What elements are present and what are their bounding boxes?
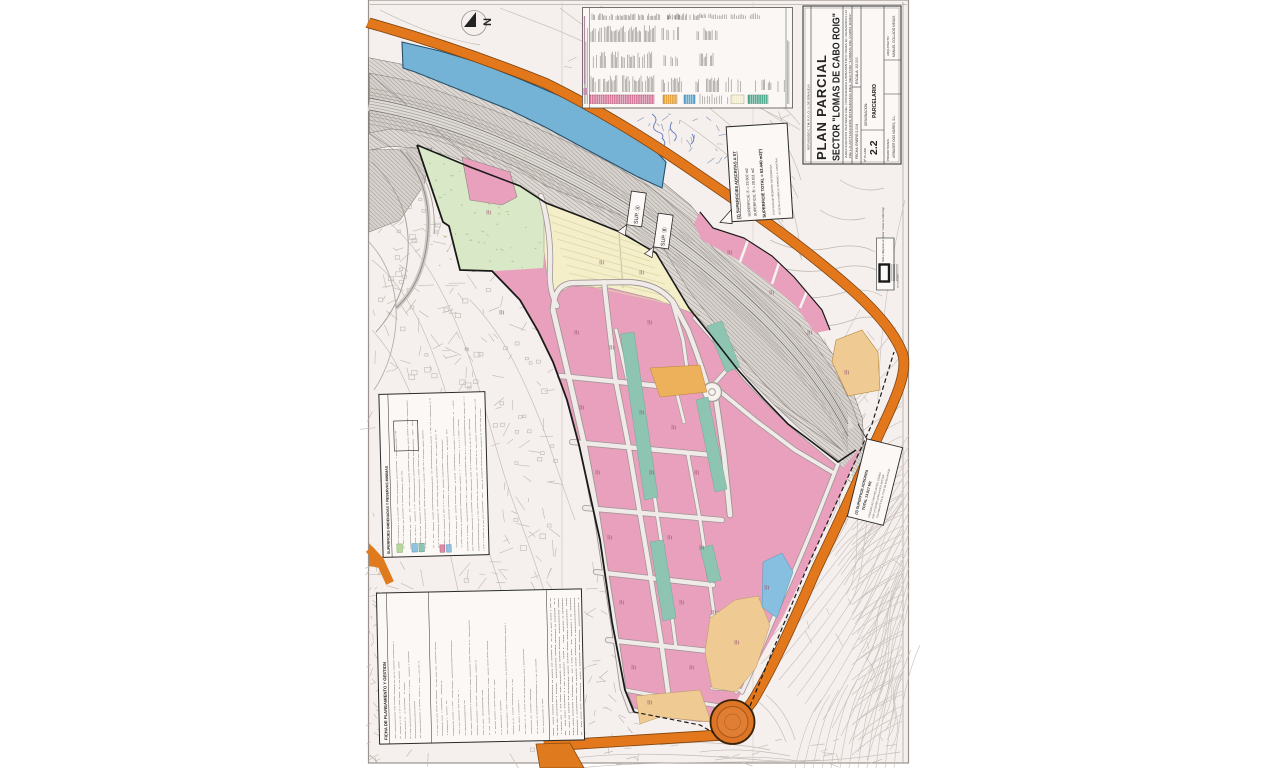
svg-text:PARCELARIO: PARCELARIO bbox=[872, 84, 878, 118]
svg-text:SECTOR "LOMAS DE CABO ROIG": SECTOR "LOMAS DE CABO ROIG" bbox=[831, 13, 843, 161]
svg-text:URBASER DOS MARES, S.L.: URBASER DOS MARES, S.L. bbox=[892, 115, 896, 158]
svg-text:DESIGNACION:: DESIGNACION: bbox=[864, 103, 868, 126]
svg-text:N: N bbox=[481, 18, 493, 26]
svg-text:DILIGENCIAS: DILIGENCIAS bbox=[897, 274, 900, 288]
svg-text:ESCALA: 1/2.000: ESCALA: 1/2.000 bbox=[855, 57, 859, 84]
svg-text:ARQUITECTO:: ARQUITECTO: bbox=[886, 35, 890, 56]
svg-text:MANUEL COLLADO MESAS: MANUEL COLLADO MESAS bbox=[892, 16, 896, 57]
svg-text:2.2: 2.2 bbox=[868, 140, 880, 155]
svg-text:REFUNDIDO C.T.M. P. G. O. U.: REFUNDIDO C.T.M. P. G. O. U. DE ORIHUELA bbox=[807, 83, 811, 150]
svg-text:Sello y Diligencias en Sector: Sello y Diligencias en Sector "Lomas de … bbox=[882, 207, 885, 262]
svg-text:DE LA ACTUACION INTEGRADA DEL: DE LA ACTUACION INTEGRADA DEL SECTOR "LO… bbox=[848, 13, 852, 158]
svg-text:PROMOTORES:: PROMOTORES: bbox=[886, 138, 890, 161]
svg-text:Nº PLANO: Nº PLANO bbox=[863, 147, 867, 162]
svg-text:FECHA: ENERO 2.004: FECHA: ENERO 2.004 bbox=[855, 124, 859, 159]
svg-text:PLAN PARCIAL: PLAN PARCIAL bbox=[814, 55, 829, 160]
